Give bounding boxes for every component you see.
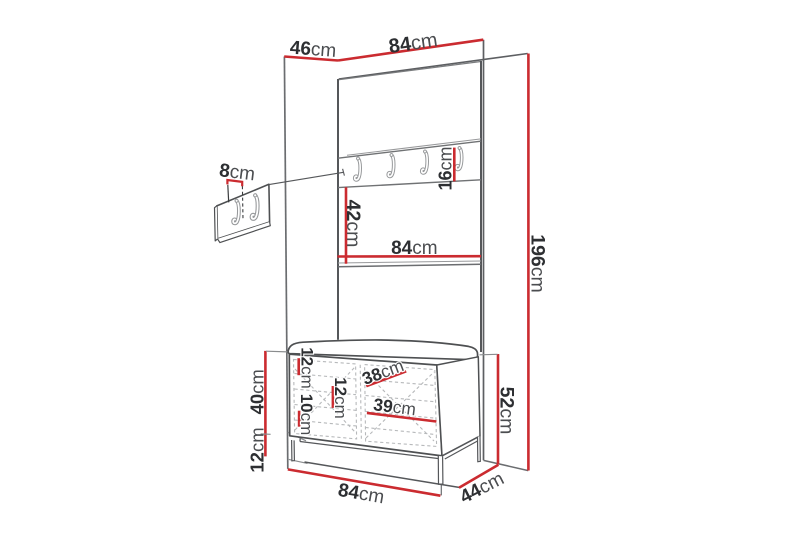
svg-text:16cm: 16cm	[435, 146, 455, 190]
svg-text:52cm: 52cm	[496, 387, 518, 435]
svg-text:8cm: 8cm	[218, 160, 256, 185]
svg-text:12cm: 12cm	[246, 427, 267, 472]
svg-text:12cm: 12cm	[331, 377, 350, 419]
svg-text:84cm: 84cm	[391, 238, 437, 259]
svg-text:10cm: 10cm	[296, 394, 315, 436]
svg-text:42cm: 42cm	[342, 200, 364, 248]
svg-text:40cm: 40cm	[246, 369, 267, 414]
svg-text:12cm: 12cm	[297, 347, 316, 389]
svg-text:196cm: 196cm	[526, 234, 548, 293]
svg-text:46cm: 46cm	[289, 38, 337, 62]
